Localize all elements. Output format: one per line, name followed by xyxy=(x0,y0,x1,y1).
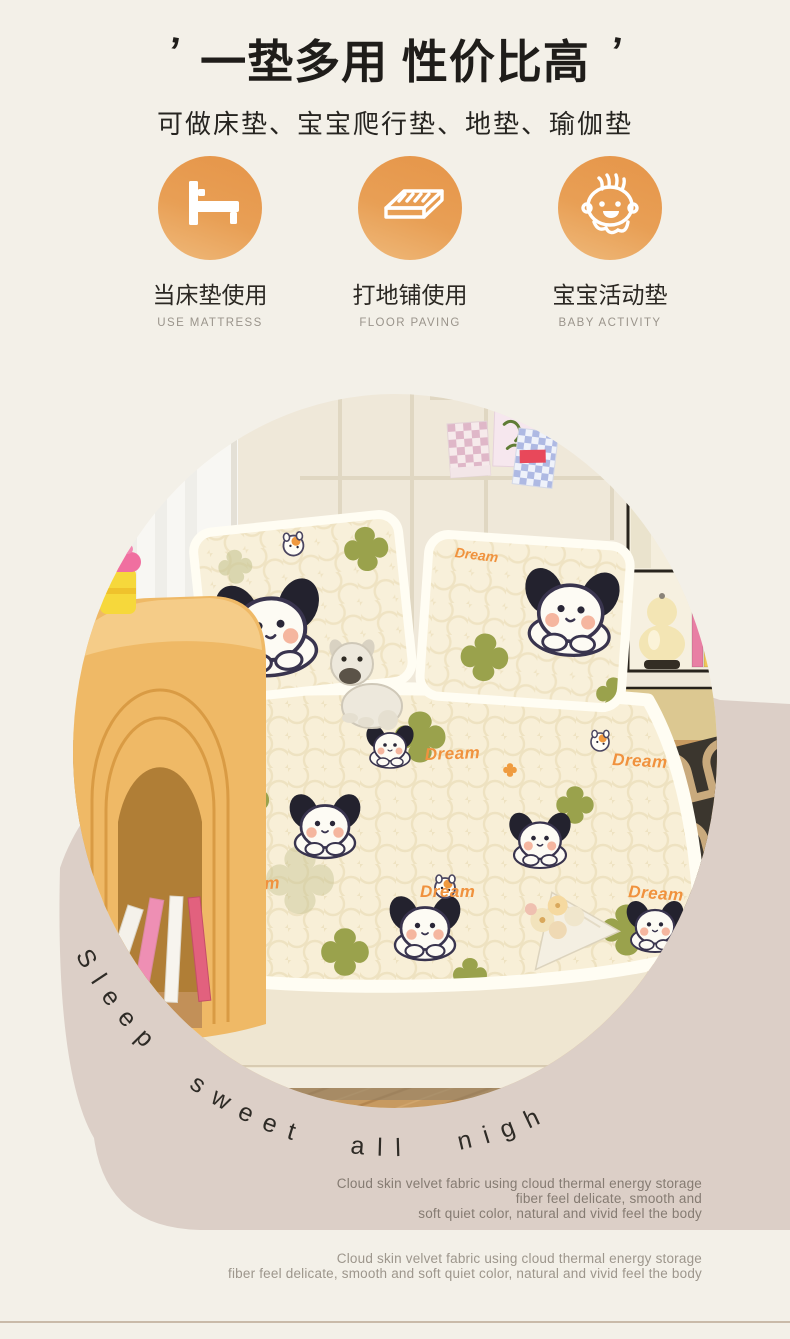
svg-text:Dream: Dream xyxy=(420,882,475,901)
description-line: Cloud skin velvet fabric using cloud the… xyxy=(337,1177,702,1192)
wall-lamp xyxy=(642,452,674,484)
feature-sublabel: FLOOR PAVING xyxy=(310,317,510,329)
feature-sublabel: BABY ACTIVITY xyxy=(510,317,710,329)
cup xyxy=(95,544,141,614)
feature-baby-activity: 宝宝活动垫 BABY ACTIVITY xyxy=(510,156,710,329)
description-line: fiber feel delicate, smooth and xyxy=(337,1192,702,1207)
svg-text:Dream: Dream xyxy=(612,750,668,772)
feature-floor-paving: 打地铺使用 FLOOR PAVING xyxy=(310,156,510,329)
baby-icon xyxy=(558,156,662,260)
page-subtitle: 可做床垫、宝宝爬行垫、地垫、瑜伽垫 xyxy=(0,104,790,141)
description-block-1: Cloud skin velvet fabric using cloud the… xyxy=(337,1177,702,1221)
feature-row: 当床垫使用 USE MATTRESS 打地铺使用 FLOOR PAVING xyxy=(110,156,710,329)
svg-text:Dream: Dream xyxy=(424,743,480,764)
feature-label: 宝宝活动垫 xyxy=(510,276,710,310)
description-line: Cloud skin velvet fabric using cloud the… xyxy=(228,1252,702,1267)
description-line: soft quiet color, natural and vivid feel… xyxy=(337,1207,702,1222)
books xyxy=(692,583,722,667)
description-line: fiber feel delicate, smooth and soft qui… xyxy=(228,1267,702,1282)
header: ’ 一垫多用 性价比高 ’ 可做床垫、宝宝爬行垫、地垫、瑜伽垫 xyxy=(0,26,790,141)
pillow-right: Dream xyxy=(418,533,640,712)
feature-label: 打地铺使用 xyxy=(310,276,510,310)
feature-sublabel: USE MATTRESS xyxy=(110,317,310,329)
section-divider xyxy=(0,1321,790,1323)
feature-label: 当床垫使用 xyxy=(110,276,310,310)
quote-left-mark: ’ xyxy=(164,29,184,75)
svg-text:Dream: Dream xyxy=(628,882,685,905)
bed-icon xyxy=(158,156,262,260)
quote-right-mark: ’ xyxy=(606,29,626,75)
page-title-row: ’ 一垫多用 性价比高 ’ xyxy=(0,26,790,92)
feature-use-mattress: 当床垫使用 USE MATTRESS xyxy=(110,156,310,329)
floor-mattress-icon xyxy=(358,156,462,260)
page-title: 一垫多用 性价比高 xyxy=(200,26,590,92)
description-block-2: Cloud skin velvet fabric using cloud the… xyxy=(228,1252,702,1281)
